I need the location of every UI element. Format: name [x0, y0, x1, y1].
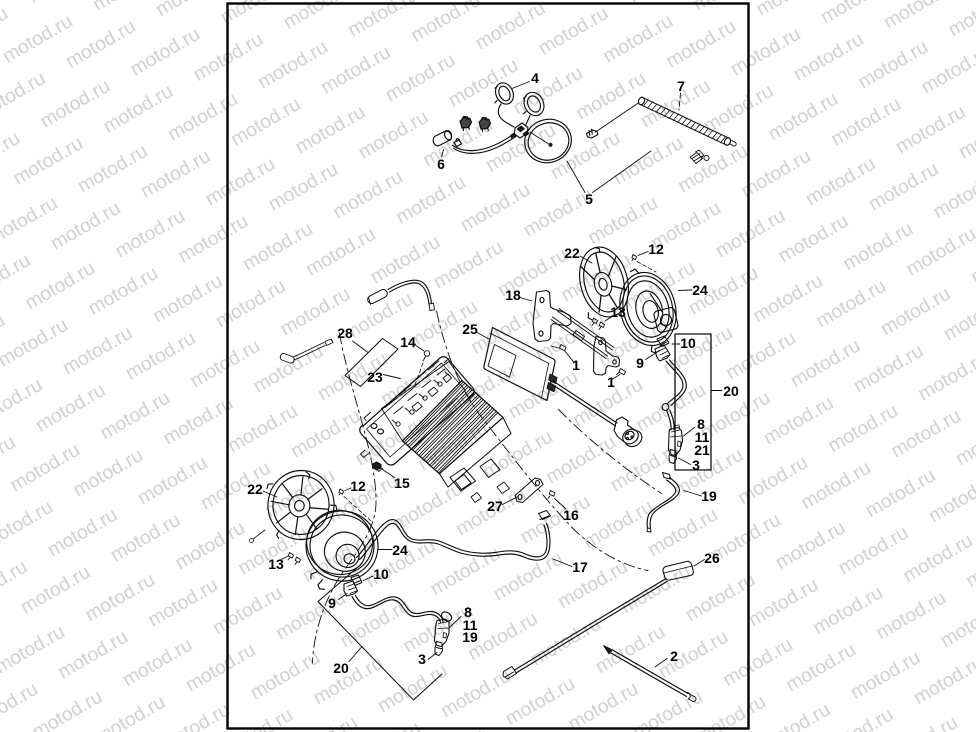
svg-text:28: 28 [337, 325, 353, 341]
svg-text:18: 18 [505, 287, 521, 303]
svg-text:27: 27 [487, 498, 503, 514]
svg-text:12: 12 [648, 241, 664, 257]
svg-text:23: 23 [367, 369, 383, 385]
svg-text:2: 2 [670, 648, 678, 664]
svg-text:7: 7 [677, 78, 685, 94]
svg-text:20: 20 [723, 383, 739, 399]
svg-text:12: 12 [350, 478, 366, 494]
svg-text:13: 13 [610, 304, 626, 320]
svg-text:10: 10 [373, 566, 389, 582]
svg-text:24: 24 [392, 542, 408, 558]
svg-text:17: 17 [572, 559, 588, 575]
svg-text:24: 24 [692, 282, 708, 298]
svg-text:16: 16 [563, 507, 579, 523]
svg-text:3: 3 [418, 651, 426, 667]
svg-text:25: 25 [462, 321, 478, 337]
svg-text:6: 6 [437, 156, 445, 172]
svg-text:3: 3 [692, 457, 700, 473]
svg-text:20: 20 [333, 660, 349, 676]
svg-text:15: 15 [394, 475, 410, 491]
svg-text:5: 5 [585, 191, 593, 207]
svg-text:19: 19 [462, 629, 478, 645]
svg-text:26: 26 [704, 550, 720, 566]
svg-text:14: 14 [400, 334, 416, 350]
svg-text:9: 9 [328, 595, 336, 611]
svg-text:1: 1 [607, 374, 615, 390]
svg-text:22: 22 [247, 481, 263, 497]
svg-text:1: 1 [572, 357, 580, 373]
svg-text:10: 10 [680, 335, 696, 351]
svg-text:19: 19 [701, 488, 717, 504]
svg-text:21: 21 [694, 442, 710, 458]
svg-text:22: 22 [564, 245, 580, 261]
svg-text:13: 13 [268, 556, 284, 572]
svg-text:9: 9 [636, 355, 644, 371]
svg-text:4: 4 [531, 70, 539, 86]
